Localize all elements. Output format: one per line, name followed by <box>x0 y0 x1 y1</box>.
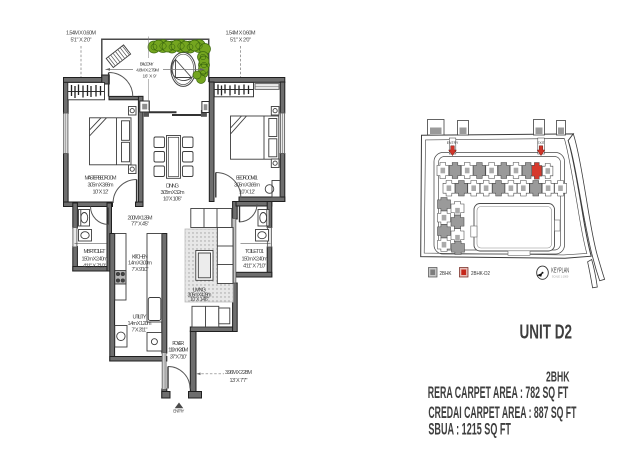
svg-text:ENTRY: ENTRY <box>173 408 184 413</box>
svg-text:1.4m X 1.20m: 1.4m X 1.20m <box>128 321 152 327</box>
svg-text:2BHK-D2: 2BHK-D2 <box>471 271 490 277</box>
svg-text:UTILITY: UTILITY <box>133 315 147 321</box>
svg-text:4.8M X 2.79M: 4.8M X 2.79M <box>136 67 159 73</box>
svg-text:BEDROOM 01: BEDROOM 01 <box>236 175 258 181</box>
svg-text:MASTER BEDROOM: MASTER BEDROOM <box>85 175 117 181</box>
svg-text:MBR TOILET: MBR TOILET <box>84 249 107 255</box>
svg-text:3.05m X 3.66m: 3.05m X 3.66m <box>234 182 260 188</box>
svg-text:SBUA : 1215 SQ FT: SBUA : 1215 SQ FT <box>428 420 511 438</box>
svg-text:BALCONY: BALCONY <box>140 61 155 67</box>
svg-text:4'11" X 7'10": 4'11" X 7'10" <box>243 263 266 269</box>
svg-text:1.54M X 0.60M: 1.54M X 0.60M <box>66 30 96 36</box>
svg-text:2.00M X 1.35M: 2.00M X 1.35M <box>128 215 153 221</box>
svg-text:ENTRY: ENTRY <box>447 141 459 145</box>
svg-text:3.05m X 3.2m: 3.05m X 3.2m <box>161 190 185 196</box>
svg-text:1.4m X 3.00m: 1.4m X 3.00m <box>128 261 152 267</box>
svg-text:KITCHEN: KITCHEN <box>132 254 148 260</box>
svg-text:5'1" X 2'0": 5'1" X 2'0" <box>230 38 251 44</box>
svg-text:1.50m X 2.40m: 1.50m X 2.40m <box>82 256 108 262</box>
svg-text:2BHK: 2BHK <box>546 368 570 385</box>
svg-text:3'7" X 7'10": 3'7" X 7'10" <box>170 354 187 360</box>
svg-text:EXIT: EXIT <box>537 141 545 145</box>
svg-text:3.96M X 2.28M: 3.96M X 2.28M <box>225 370 252 376</box>
svg-text:3.05m X 3.66m: 3.05m X 3.66m <box>88 182 114 188</box>
svg-text:DINING: DINING <box>166 184 179 190</box>
svg-text:FOYER: FOYER <box>172 341 184 347</box>
svg-text:10' X 12': 10' X 12' <box>93 189 109 195</box>
svg-text:1.54M X 0.60M: 1.54M X 0.60M <box>226 30 256 36</box>
svg-text:1.10m X 2.40M: 1.10m X 2.40M <box>168 347 188 353</box>
svg-text:7'7" X 4'5": 7'7" X 4'5" <box>131 222 149 228</box>
svg-text:2BHK: 2BHK <box>440 271 452 277</box>
svg-text:10' X 10'6": 10' X 10'6" <box>163 197 182 203</box>
svg-text:TOILET 01: TOILET 01 <box>245 249 264 255</box>
svg-text:KEYPLAN: KEYPLAN <box>551 267 569 274</box>
svg-text:UNIT D2: UNIT D2 <box>520 320 573 343</box>
svg-text:RERA CARPET AREA : 782 SQ FT: RERA CARPET AREA : 782 SQ FT <box>428 384 569 402</box>
svg-text:16' X 9': 16' X 9' <box>143 73 157 79</box>
svg-text:10' X 14'6": 10' X 14'6" <box>190 297 209 303</box>
svg-text:13' X 7'7": 13' X 7'7" <box>230 378 248 384</box>
svg-text:CREDAI CARPET AREA : 887 SQ FT: CREDAI CARPET AREA : 887 SQ FT <box>428 404 576 422</box>
svg-text:1.50m X 2.40m: 1.50m X 2.40m <box>242 256 268 262</box>
svg-text:5'1" X 2'0": 5'1" X 2'0" <box>71 38 92 44</box>
svg-text:7' X 9'10": 7' X 9'10" <box>132 267 149 273</box>
svg-text:10' X 12': 10' X 12' <box>239 189 255 195</box>
svg-text:SCALE 1:1000: SCALE 1:1000 <box>552 275 569 279</box>
svg-text:4'11" X 7'10": 4'11" X 7'10" <box>83 263 106 269</box>
svg-text:7' X 3'11": 7' X 3'11" <box>132 327 148 333</box>
